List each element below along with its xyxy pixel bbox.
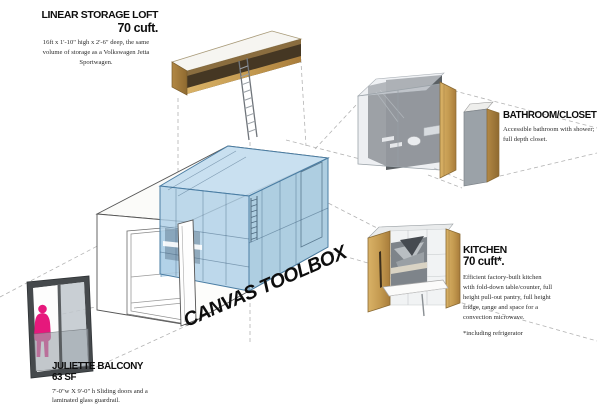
callout-juliette-balcony: JULIETTE BALCONY 63 SF 7'-0"w X 9'-0" h … bbox=[52, 361, 164, 406]
fridge-wood-panel bbox=[446, 229, 460, 308]
bathroom-closet-title: BATHROOM/CLOSET bbox=[503, 110, 600, 121]
bathroom-closet-illustration bbox=[358, 73, 499, 186]
glass-wall bbox=[358, 84, 440, 170]
bathroom-closet-description: Accessible bathroom with shower; full de… bbox=[503, 125, 600, 145]
juliette-balcony-description: 7'-0"w X 9'-0" h Sliding doors and a lam… bbox=[52, 387, 164, 407]
closet bbox=[464, 102, 499, 186]
pantry-wood-door bbox=[368, 231, 390, 312]
callout-kitchen: KITCHEN 70 cuft*. Efficient factory-buil… bbox=[463, 244, 553, 339]
kitchen-volume: 70 cuft*. bbox=[463, 256, 553, 269]
kitchen-footnote: *including refrigerator bbox=[463, 329, 553, 339]
bathroom-wood-panel bbox=[440, 82, 456, 178]
juliette-balcony-title: JULIETTE BALCONY bbox=[52, 361, 164, 372]
kitchen-description: Efficient factory-built kitchen with fol… bbox=[463, 273, 553, 322]
storage-loft-description: 16ft x 1'-10" high x 2'-6" deep, the sam… bbox=[34, 38, 158, 68]
kitchen-title: KITCHEN bbox=[463, 244, 553, 256]
callout-bathroom-closet: BATHROOM/CLOSET Accessible bathroom with… bbox=[503, 110, 600, 145]
callout-storage-loft: LINEAR STORAGE LOFT 70 cuft. 16ft x 1'-1… bbox=[34, 9, 158, 68]
storage-loft-volume: 70 cuft. bbox=[34, 21, 158, 35]
kitchen-illustration bbox=[368, 224, 460, 316]
storage-loft-title: LINEAR STORAGE LOFT bbox=[34, 9, 158, 21]
storage-loft-illustration bbox=[172, 31, 301, 140]
diagram-page: CANVAS TOOLBOX LINEAR STORAGE LOFT 70 cu… bbox=[0, 0, 600, 415]
juliette-balcony-area: 63 SF bbox=[52, 372, 164, 383]
